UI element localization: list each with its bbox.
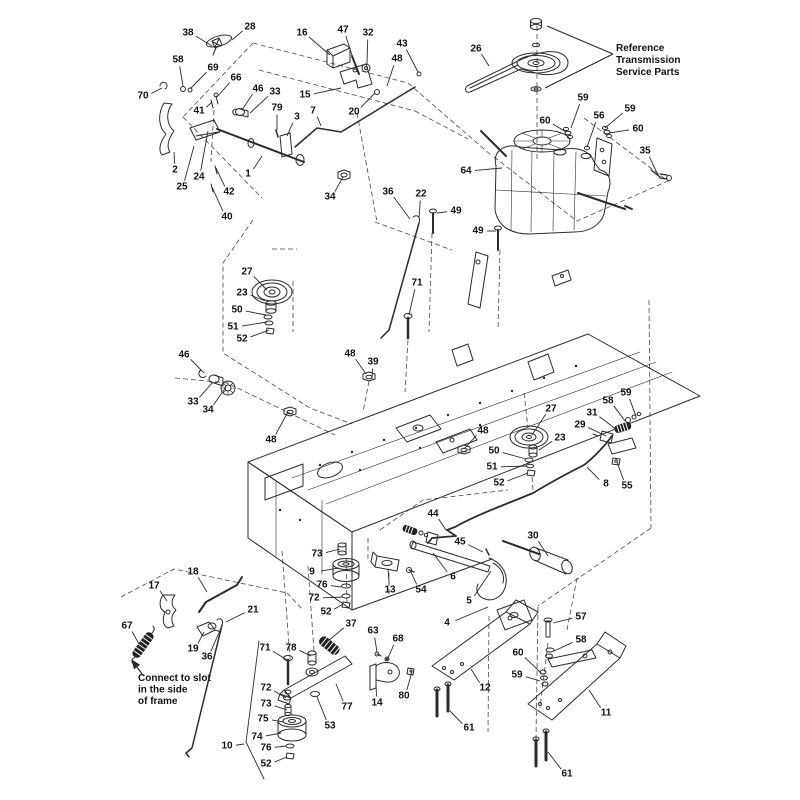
leader-line [388,645,394,658]
axle-left [481,131,506,156]
part-label: 59 [620,388,632,399]
leader-line [356,359,366,374]
part-label: 76 [316,580,328,591]
reference-transmission-note-pointer [547,26,613,54]
part-label: 42 [223,187,235,198]
leader-line [609,130,629,133]
leader-line [375,637,377,652]
leader-line [336,684,343,701]
reference-transmission-note: ReferenceTransmissionService Parts [616,43,680,78]
rod-8 [428,436,612,543]
part-label: 21 [247,605,259,616]
leader-line [196,36,212,46]
leader-line [455,607,488,621]
part-label: 1 [245,169,251,180]
part-label: 48 [477,426,489,437]
leader-line [216,168,225,186]
connect-to-slot-note: Connect to slotin the sideof frame [138,673,211,707]
leader-line [605,113,623,128]
leader-line [254,156,262,169]
part-label: 39 [367,357,379,368]
part-label: 19 [187,644,199,655]
part-label: 37 [345,619,357,630]
leader-line [526,677,540,681]
leader-line [226,613,245,622]
part-label: 68 [392,634,404,645]
part-label: 53 [324,721,336,732]
part-label: 61 [463,723,475,734]
leader-line [630,399,636,416]
part-label: 63 [367,626,379,637]
leader-line [132,631,139,644]
leader-line [450,711,462,724]
part-label: 24 [193,172,205,183]
leader-line [388,569,389,584]
part-label: 72 [308,593,320,604]
leader-line [394,197,410,219]
leader-line [439,519,446,530]
leader-line [212,187,223,211]
leader-line [232,31,243,40]
leader-line [323,597,342,598]
leader-line [191,359,204,373]
hook-5 [477,558,506,600]
part-label: 14 [371,698,383,709]
leader-line [199,382,213,397]
leader-line [501,466,527,467]
part-label: 60 [539,116,551,127]
part-label: 74 [251,732,263,743]
pedal-plates [190,120,220,140]
part-label: 29 [574,420,586,431]
part-label: 58 [575,635,587,646]
leader-line [474,571,491,596]
leader-line [437,212,447,213]
leader-line [409,289,415,315]
part-label: 59 [511,670,523,681]
part-label: 52 [260,759,272,770]
part-label: 3 [294,112,300,123]
part-label: 20 [348,107,360,118]
part-label: 58 [172,55,184,66]
spring-37 [318,635,341,656]
leader-line [617,462,624,480]
part-label: 36 [382,187,394,198]
part-label: 60 [632,124,644,135]
part-label: 48 [391,54,403,65]
part-label: 17 [148,581,160,592]
part-label: 35 [639,146,651,157]
part-label: 51 [227,322,239,333]
leader-line [508,473,528,481]
part-label: 46 [178,350,190,361]
part-label: 32 [362,28,374,39]
part-label: 23 [554,433,566,444]
leader-line [554,642,573,651]
part-label: 72 [260,683,272,694]
part-label: 66 [230,73,242,84]
part-label: 51 [486,462,498,473]
part-label: 18 [187,567,199,578]
part-label: 75 [257,714,269,725]
part-label: 31 [586,408,598,419]
leader-line [174,152,175,164]
leader-line [614,406,625,421]
phantom-lines [121,26,668,738]
leader-line [242,322,267,326]
leader-line [468,545,483,552]
part-label: 11 [601,708,612,719]
part-label: 52 [320,607,332,618]
belt-26 [466,52,568,93]
part-label: 34 [202,405,214,416]
part-label: 61 [561,769,573,780]
part-label: 64 [460,166,472,177]
leader-line [471,669,480,683]
part-label: 76 [260,743,272,754]
part-label: 71 [411,278,423,289]
part-label: 40 [221,212,233,223]
part-label: 22 [415,189,427,200]
pulley-74 [278,715,306,727]
part-label: 5 [466,596,472,607]
leader-line [599,417,617,430]
shaft-bracket [280,133,292,157]
leader-line [236,744,244,745]
leader-line [589,690,601,708]
part-label: 55 [621,481,633,492]
part-label: 73 [260,699,272,710]
leader-line [214,387,226,405]
part-label: 48 [344,349,356,360]
part-label: 9 [309,567,315,578]
leader-line [180,66,183,86]
part-label: 70 [137,91,149,102]
part-label: 49 [472,226,484,237]
lever-17 [160,595,176,628]
leader-line [198,577,207,592]
leader-line [475,168,502,170]
leader-line [335,177,343,192]
part-label: 7 [310,106,316,117]
part-label: 34 [324,192,336,203]
leader-line [411,572,417,584]
part-label: 67 [121,621,133,632]
part-label: 6 [450,572,456,583]
leader-line [587,467,599,480]
part-label: 80 [398,691,410,702]
leader-line [266,733,281,736]
leader-line [433,553,447,572]
part-label: 59 [624,104,636,115]
pedal-lever [160,103,174,155]
reference-transmission-note-pointer [545,54,613,88]
leader-line [254,276,267,290]
leader-line [387,65,394,86]
part-label: 73 [311,549,323,560]
part-label: 41 [193,106,205,117]
transmission-body [495,146,610,234]
part-label: 38 [182,28,194,39]
leader-line [317,697,326,720]
part-label: 79 [271,103,283,114]
frame-holes [279,365,577,521]
frame-top [248,334,700,532]
pad-16 [327,44,350,68]
part-label: 13 [384,585,396,596]
leader-line [274,691,286,698]
part-label: 44 [427,509,439,520]
part-label: 60 [512,648,524,659]
part-label: 2 [172,165,178,176]
leader-line [151,88,162,93]
part-label: 27 [241,267,253,278]
leader-line [275,746,286,747]
part-label: 50 [488,446,500,457]
part-label: 28 [244,22,256,33]
part-label: 4 [444,618,450,629]
part-label: 15 [299,90,311,101]
part-label: 47 [337,25,349,36]
leader-line [276,412,288,434]
nut-34 [338,170,350,180]
part-label: 36 [201,652,213,663]
leader-line [419,200,420,218]
leader-line [328,628,344,641]
leader-line [309,37,330,55]
part-label: 54 [415,585,427,596]
part-label: 25 [176,182,188,193]
leader-line [376,684,377,697]
part-label: 30 [527,531,539,542]
leader-line [481,54,489,66]
leader-line [571,104,580,128]
part-label: 23 [236,288,248,299]
shaft-6 [411,542,490,572]
part-label: 46 [252,84,264,95]
part-label: 50 [231,305,243,316]
part-label: 49 [450,206,462,217]
part-label: 48 [265,435,277,446]
connect-to-slot-note-pointer [132,660,142,674]
part-label: 33 [187,397,199,408]
part-label: 71 [259,643,271,654]
leader-line [218,83,230,96]
leader-line [331,586,341,587]
part-label: 45 [454,537,466,548]
part-label: 52 [236,334,248,345]
bracket-14 [370,663,399,690]
part-label: 33 [269,87,281,98]
bracket-13 [371,552,399,571]
leader-line [321,568,339,571]
leader-line [587,122,596,147]
leader-line [246,311,266,315]
mount-plate [594,138,612,176]
leader-line [361,93,375,108]
leader-line [317,117,321,126]
part-label: 56 [593,111,605,122]
leader-line [250,96,268,113]
spring-31 [614,422,631,434]
part-label: 12 [479,683,491,694]
part-label: 27 [545,404,557,415]
bracket-12 [432,600,538,680]
part-label: 57 [575,612,587,623]
leader-line [406,50,418,72]
leader-line [206,102,212,107]
part-label: 69 [207,63,219,74]
spring-67 [132,631,155,658]
leader-line [367,39,368,64]
leader-line [191,72,206,88]
part-label: 78 [285,643,297,654]
leader-line [275,757,287,762]
part-label: 16 [296,28,308,39]
part-label: 52 [493,478,505,489]
leader-line [553,618,572,623]
leader-line [503,453,526,459]
part-label: 43 [396,39,408,50]
exploded-diagram: 3828164732434858696670414633793715202252… [0,0,800,800]
leader-line [548,752,561,769]
axle-right [578,193,625,209]
part-label: 10 [221,741,233,752]
diagram-artwork [132,19,700,780]
part-label: 58 [602,396,614,407]
leader-line [242,94,253,110]
part-label: 8 [603,479,609,490]
leader-line [525,657,541,673]
part-label: 59 [577,93,589,104]
part-label: 77 [341,702,353,713]
part-label: 26 [470,44,482,55]
